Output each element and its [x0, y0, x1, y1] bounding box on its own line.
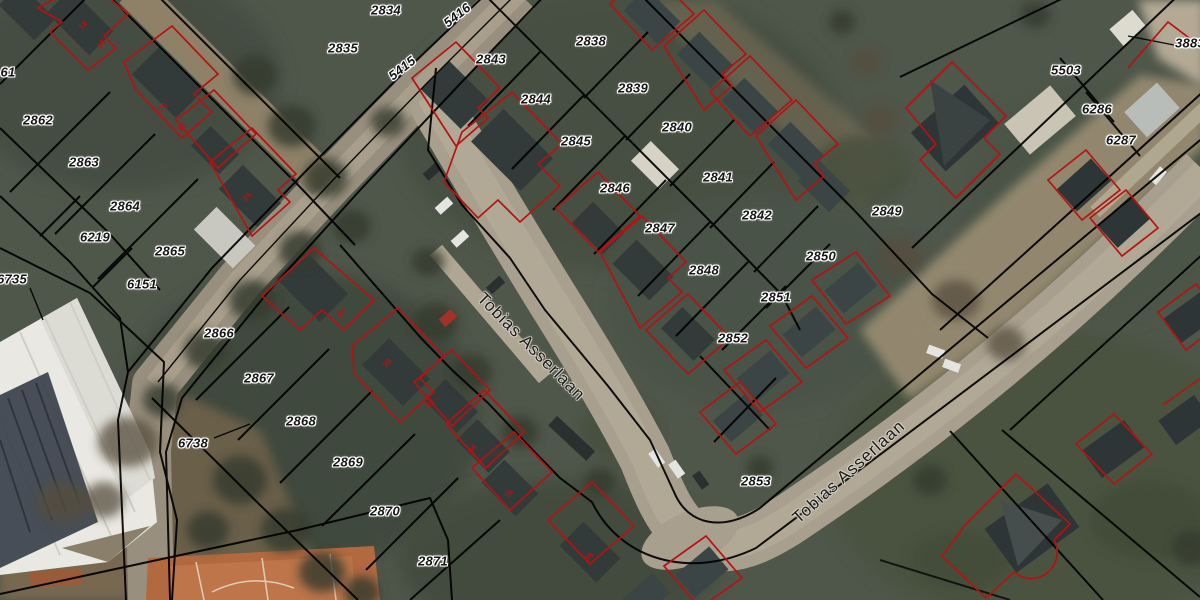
map-viewport[interactable]: 6128622863286462192865615167352866286728… [0, 0, 1200, 600]
aerial-imagery [0, 0, 1200, 600]
